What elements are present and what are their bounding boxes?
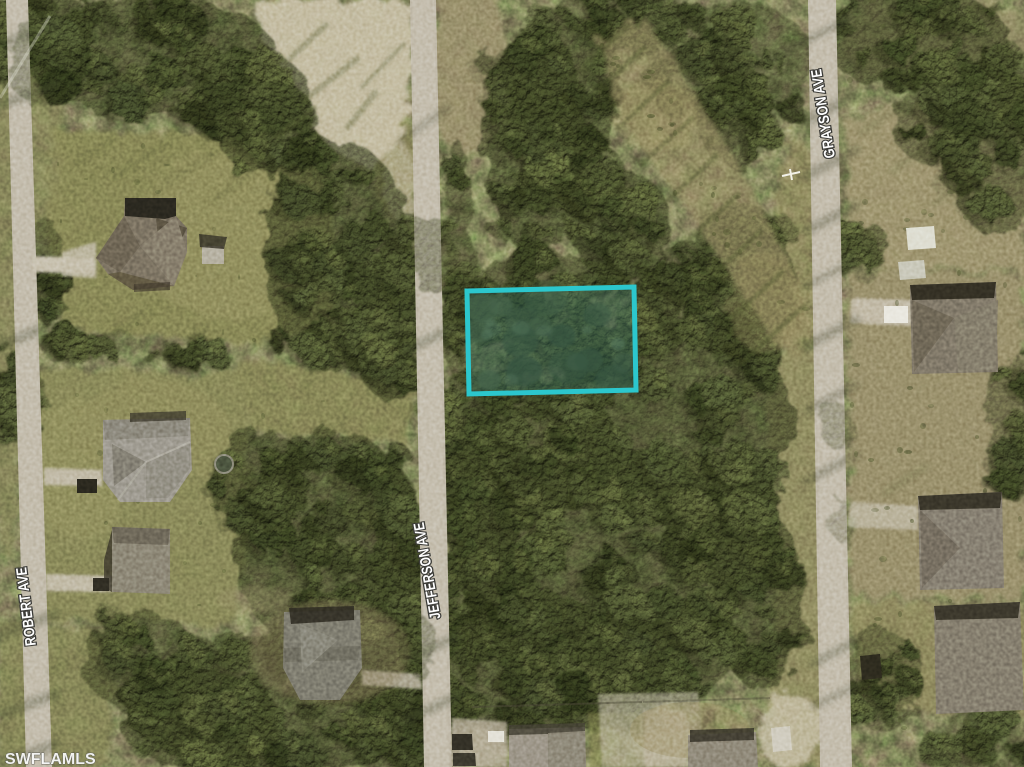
- svg-text:SWFLAMLS: SWFLAMLS: [5, 751, 96, 767]
